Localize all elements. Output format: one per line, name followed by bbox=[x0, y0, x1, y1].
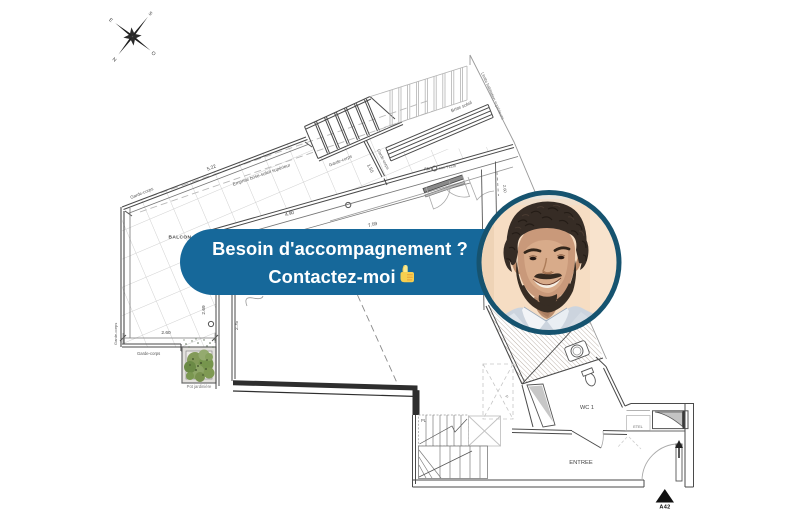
svg-text:O: O bbox=[150, 50, 157, 57]
svg-text:2.69: 2.69 bbox=[201, 305, 207, 315]
svg-text:A42: A42 bbox=[659, 505, 670, 511]
svg-text:Abri: Abri bbox=[424, 166, 432, 172]
svg-text:E: E bbox=[107, 17, 114, 24]
svg-text:PL: PL bbox=[421, 418, 427, 423]
svg-text:Contactez-moi: Contactez-moi bbox=[268, 266, 395, 287]
svg-text:ETEL: ETEL bbox=[633, 425, 643, 429]
svg-text:ENTREE: ENTREE bbox=[569, 460, 593, 466]
svg-text:S: S bbox=[147, 11, 154, 18]
svg-text:Garde-corps: Garde-corps bbox=[113, 323, 118, 345]
svg-text:BALCON: BALCON bbox=[169, 235, 192, 241]
svg-text:Pot jardinière: Pot jardinière bbox=[187, 384, 212, 389]
svg-text:7.59: 7.59 bbox=[367, 221, 378, 229]
svg-text:Besoin d'accompagnement ?: Besoin d'accompagnement ? bbox=[212, 238, 468, 259]
svg-text:2.60: 2.60 bbox=[502, 185, 508, 194]
svg-text:N: N bbox=[111, 57, 118, 64]
svg-text:2.75: 2.75 bbox=[234, 321, 239, 330]
svg-text:4.90: 4.90 bbox=[284, 210, 295, 218]
svg-text:Garde-corps: Garde-corps bbox=[137, 351, 160, 356]
svg-text:P: P bbox=[504, 394, 510, 399]
svg-text:2.60: 2.60 bbox=[161, 330, 171, 336]
svg-text:WC 1: WC 1 bbox=[580, 405, 594, 411]
